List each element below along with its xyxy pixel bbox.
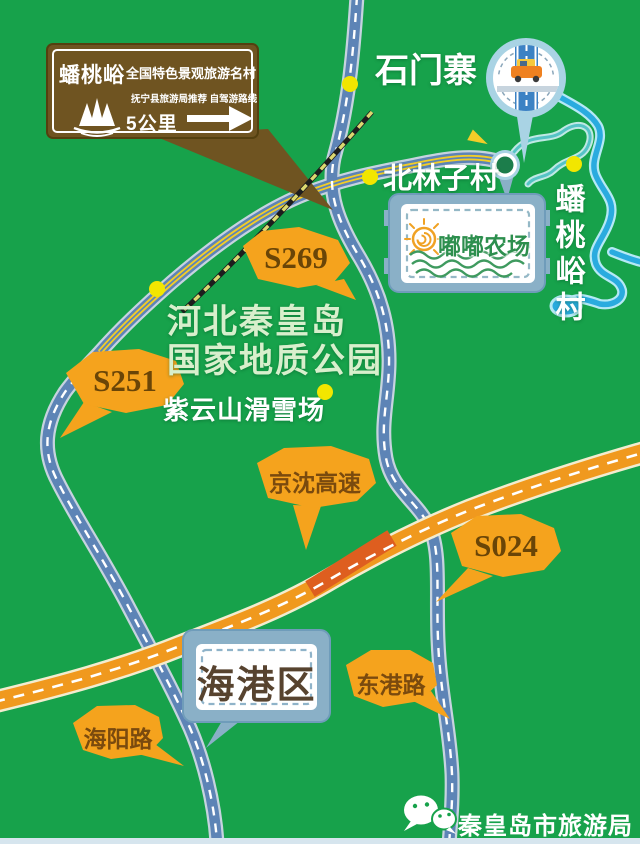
callout-label-donggang: 东港路 bbox=[349, 666, 433, 700]
poi-dot-beilinzicun bbox=[362, 169, 378, 185]
label-pantaoyucun: 蟠桃峪村 bbox=[549, 183, 584, 327]
callout-jingshen bbox=[257, 446, 376, 550]
poi-dot-geopark bbox=[149, 281, 165, 297]
viewpoint-bubble-icon bbox=[486, 38, 566, 163]
district-sign-label: 海港区 bbox=[196, 654, 317, 709]
farm-sign-label: 嘟嘟农场 bbox=[438, 227, 530, 261]
guide-sign-pointer bbox=[152, 129, 333, 210]
tourist-map: 石门寨 北林子村 蟠桃峪村 河北秦皇岛 国家地质公园 紫云山滑雪场 S269 S… bbox=[0, 0, 640, 844]
label-ziyunshan: 紫云山滑雪场 bbox=[163, 396, 325, 426]
label-beilinzicun: 北林子村 bbox=[383, 163, 499, 196]
label-shimenzhai: 石门寨 bbox=[375, 52, 477, 91]
callout-label-s024: S024 bbox=[456, 528, 556, 564]
callout-label-s251: S251 bbox=[75, 363, 175, 399]
callout-label-haiyang: 海阳路 bbox=[76, 720, 160, 754]
callout-label-s269: S269 bbox=[246, 240, 346, 276]
guide-sign-recommendation: 抚宁县旅游局推荐 自驾游路线 bbox=[131, 91, 257, 105]
footer-agency: 秦皇岛市旅游局 bbox=[458, 806, 633, 841]
guide-sign-title: 全国特色景观旅游名村 bbox=[126, 63, 256, 82]
label-geopark-line2: 国家地质公园 bbox=[167, 342, 383, 381]
label-geopark-line1: 河北秦皇岛 bbox=[167, 303, 347, 342]
guide-sign-distance: 5公里 bbox=[126, 109, 178, 136]
speech-tail bbox=[206, 721, 240, 748]
poi-dot-pantaoyucun bbox=[566, 156, 582, 172]
callout-label-jingshen: 京沈高速 bbox=[260, 464, 370, 498]
main-road-casing bbox=[332, 0, 452, 844]
main-road bbox=[332, 0, 452, 844]
poi-dot-shimenzhai bbox=[342, 76, 358, 92]
guide-sign-name: 蟠桃峪 bbox=[59, 59, 125, 89]
